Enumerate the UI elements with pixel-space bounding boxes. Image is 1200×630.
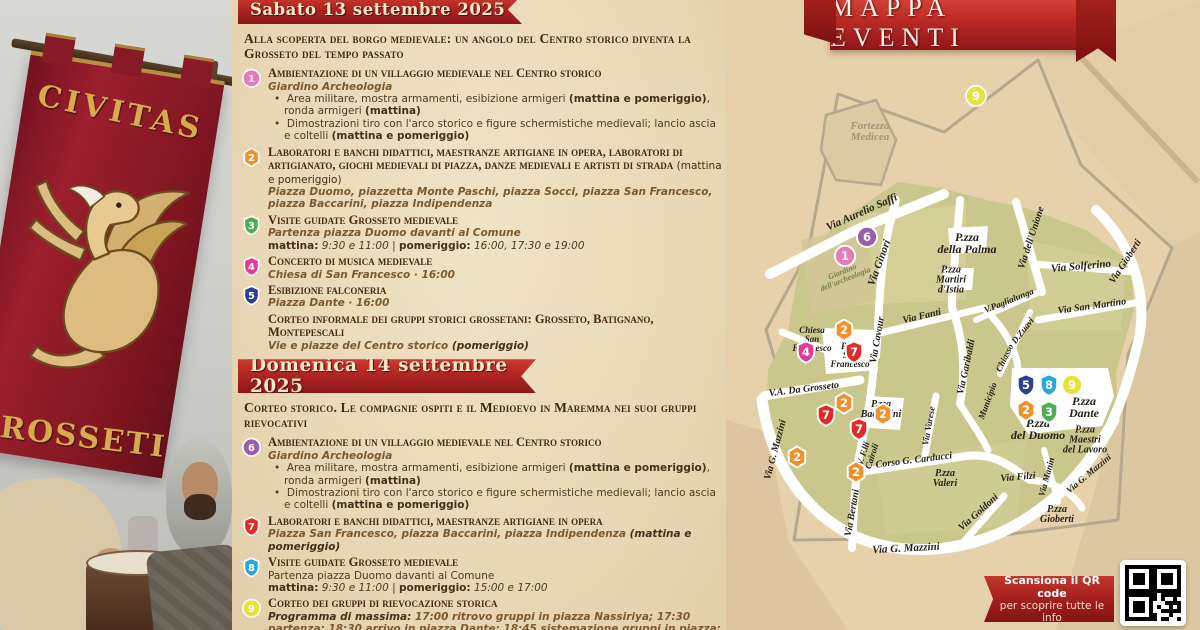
event-number-badge-3: 3	[242, 214, 261, 252]
svg-text:2: 2	[248, 152, 255, 163]
svg-text:4: 4	[802, 345, 810, 359]
event-title: Concerto di musica medievale	[268, 255, 722, 269]
sunday-items: 6Ambientazione di un villaggio medievale…	[238, 436, 726, 630]
svg-text:7: 7	[248, 522, 255, 533]
svg-text:6: 6	[863, 230, 871, 244]
svg-text:9: 9	[248, 604, 255, 615]
program-item: 7Laboratori e banchi didattici, maestran…	[242, 515, 726, 553]
svg-text:1: 1	[841, 249, 849, 263]
event-title: Visite guidate Grosseto medievale	[268, 556, 722, 570]
event-detail: Programma di massima: 17:00 ritrovo grup…	[268, 611, 722, 630]
saturday-intro: Alla scoperta del borgo medievale: un an…	[244, 31, 712, 61]
banner-bottom-label: GROSSETI	[0, 407, 169, 466]
svg-text:2: 2	[840, 396, 848, 410]
event-detail: Piazza Dante · 16:00	[268, 297, 722, 309]
event-detail: Giardino Archeologia	[268, 450, 722, 462]
map-marker-7: 7	[848, 417, 870, 445]
banner-tab	[180, 55, 214, 88]
map-marker-2: 2	[845, 460, 867, 488]
svg-text:2: 2	[840, 323, 848, 337]
event-detail: Piazza San Francesco, piazza Baccarini, …	[268, 528, 722, 553]
map-marker-2: 2	[1015, 398, 1037, 426]
event-number-badge-1: 1	[242, 67, 261, 142]
event-number-badge-2: 2	[242, 146, 261, 211]
event-number-badge-7: 7	[242, 515, 261, 553]
program-item: 2Laboratori e banchi didattici, maestran…	[242, 146, 726, 211]
svg-text:7: 7	[822, 408, 830, 422]
event-detail: • Area militare, mostra armamenti, esibi…	[268, 462, 722, 487]
event-map-panel: Via Aurelio SaffiVia GinoriVia CavourVia…	[726, 0, 1200, 630]
map-marker-1: 1	[834, 244, 856, 272]
photo-panel: CIVITAS GROSSETI	[0, 0, 232, 630]
map-marker-7: 7	[843, 340, 865, 368]
event-number-badge-5: 5	[242, 284, 261, 310]
program-item: 4Concerto di musica medievaleChiesa di S…	[242, 255, 726, 281]
svg-text:2: 2	[852, 465, 860, 479]
griffin-emblem	[0, 120, 202, 385]
event-detail: • Dimostrazioni tiro con l'arco storico …	[268, 118, 722, 143]
qr-callout-ribbon: Scansiona il QR code per scoprire tutte …	[984, 576, 1114, 622]
program-item: 6Ambientazione di un villaggio medievale…	[242, 436, 726, 511]
event-detail: Chiesa di San Francesco · 16:00	[268, 269, 722, 281]
event-detail: Vie e piazze del Centro storico (pomerig…	[268, 340, 722, 352]
map-marker-2: 2	[872, 402, 894, 430]
saturday-ribbon: Sabato 13 settembre 2025	[238, 0, 522, 24]
svg-text:4: 4	[248, 262, 255, 273]
event-title: Laboratori e banchi didattici, maestranz…	[268, 515, 722, 529]
map-marker-8: 8	[1038, 373, 1060, 401]
svg-text:2: 2	[793, 450, 801, 464]
svg-text:1: 1	[248, 74, 255, 85]
event-number-badge-8: 8	[242, 556, 261, 594]
event-number-badge-9: 9	[242, 597, 261, 630]
event-poster: CIVITAS GROSSETI	[0, 0, 1200, 630]
svg-text:7: 7	[850, 345, 858, 359]
map-marker-7: 7	[815, 403, 837, 431]
svg-text:6: 6	[248, 443, 255, 454]
sunday-intro: Corteo storico. Le compagnie ospiti e il…	[244, 400, 712, 430]
event-detail: mattina: 9:30 e 11:00 | pomeriggio: 15:0…	[268, 582, 722, 594]
svg-text:3: 3	[248, 221, 255, 232]
event-title: Visite guidate Grosseto medievale	[268, 214, 722, 228]
sunday-ribbon: Domenica 14 settembre 2025	[238, 359, 536, 393]
map-marker-9: 9	[1061, 373, 1083, 401]
svg-text:9: 9	[972, 89, 980, 103]
map-title-ribbon: MAPPA EVENTI	[830, 0, 1082, 50]
svg-text:2: 2	[1022, 403, 1030, 417]
banner-tab	[111, 44, 145, 77]
event-number-spacer	[242, 313, 261, 352]
saturday-ribbon-label: Sabato 13 settembre 2025	[250, 0, 505, 19]
program-item: 8Visite guidate Grosseto medievaleParten…	[242, 556, 726, 594]
program-item: 5Esibizione falconeriaPiazza Dante · 16:…	[242, 284, 726, 310]
program-item: 1Ambientazione di un villaggio medievale…	[242, 67, 726, 142]
svg-text:5: 5	[248, 291, 255, 302]
banner-tab	[42, 33, 76, 66]
event-detail: Piazza Duomo, piazzetta Monte Paschi, pi…	[268, 186, 722, 211]
event-title: Laboratori e banchi didattici, maestranz…	[268, 146, 722, 187]
event-detail: Partenza piazza Duomo davanti al Comune	[268, 227, 722, 239]
event-title: Ambientazione di un villaggio medievale …	[268, 67, 722, 81]
svg-text:2: 2	[879, 407, 887, 421]
map-marker-9: 9	[965, 84, 987, 112]
map-marker-2: 2	[786, 445, 808, 473]
saturday-items: 1Ambientazione di un villaggio medievale…	[238, 67, 726, 352]
map-marker-6: 6	[856, 225, 878, 253]
svg-text:8: 8	[1045, 378, 1053, 392]
map-marker-3: 3	[1038, 400, 1060, 428]
civitas-banner: CIVITAS GROSSETI	[0, 51, 225, 479]
program-item: 9Corteo dei gruppi di rievocazione stori…	[242, 597, 726, 630]
event-title: Corteo informale dei gruppi storici gros…	[268, 313, 722, 340]
program-item: Corteo informale dei gruppi storici gros…	[242, 313, 726, 352]
svg-text:8: 8	[248, 563, 255, 574]
svg-text:3: 3	[1045, 405, 1053, 419]
program-panel: Sabato 13 settembre 2025 Alla scoperta d…	[232, 0, 726, 630]
qr-callout-line2: per scoprire tutte le info	[990, 600, 1114, 624]
city-map-graphic	[726, 0, 1200, 630]
event-number-badge-6: 6	[242, 436, 261, 511]
event-title: Corteo dei gruppi di rievocazione storic…	[268, 597, 722, 611]
event-detail: • Dimostrazioni tiro con l'arco storico …	[268, 487, 722, 512]
event-detail: • Area militare, mostra armamenti, esibi…	[268, 93, 722, 118]
chainmail-man-beard	[184, 494, 216, 520]
svg-text:9: 9	[1068, 378, 1076, 392]
svg-text:5: 5	[1022, 378, 1030, 392]
svg-text:7: 7	[855, 422, 863, 436]
sunday-ribbon-label: Domenica 14 settembre 2025	[250, 355, 522, 397]
map-marker-4: 4	[795, 340, 817, 368]
event-number-badge-4: 4	[242, 255, 261, 281]
qr-callout-line1: Scansiona il QR code	[990, 574, 1114, 600]
event-title: Ambientazione di un villaggio medievale …	[268, 436, 722, 450]
qr-code	[1120, 560, 1186, 626]
chainmail-man-body	[146, 544, 232, 630]
event-detail: Partenza piazza Duomo davanti al Comune	[268, 570, 722, 582]
event-detail: Giardino Archeologia	[268, 81, 722, 93]
event-title: Esibizione falconeria	[268, 284, 722, 298]
event-detail: mattina: 9:30 e 11:00 | pomeriggio: 16:0…	[268, 240, 722, 252]
program-item: 3Visite guidate Grosseto medievaleParten…	[242, 214, 726, 252]
map-title: MAPPA EVENTI	[830, 0, 1082, 53]
map-marker-5: 5	[1015, 373, 1037, 401]
